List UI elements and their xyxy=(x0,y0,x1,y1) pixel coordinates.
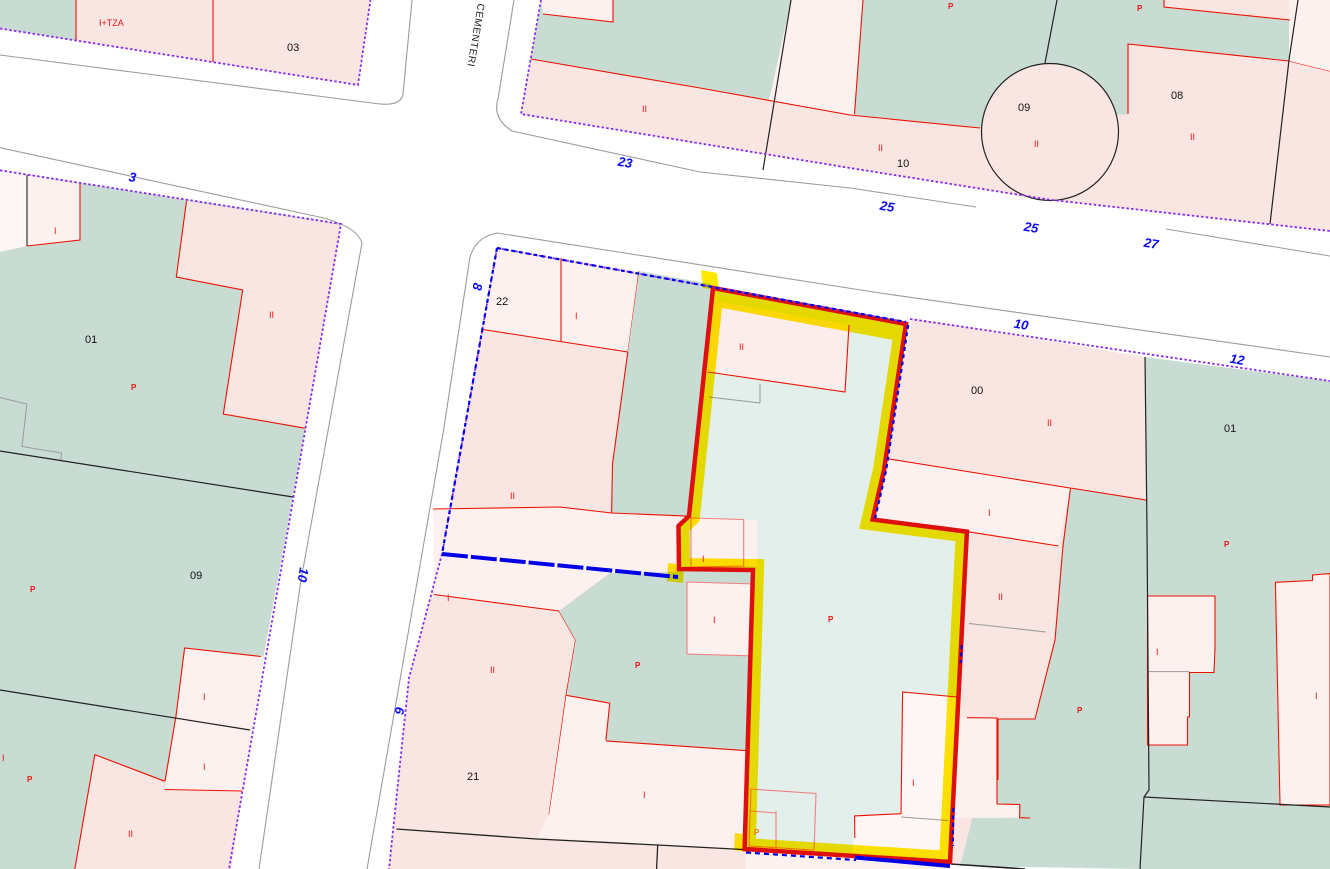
svg-text:I: I xyxy=(912,778,915,788)
svg-text:P: P xyxy=(948,2,954,11)
svg-text:P: P xyxy=(27,775,33,784)
svg-text:I: I xyxy=(203,692,206,702)
svg-text:P: P xyxy=(1224,540,1230,549)
svg-text:II: II xyxy=(739,342,744,352)
svg-text:I: I xyxy=(713,615,716,625)
svg-text:00: 00 xyxy=(971,385,983,397)
svg-text:I: I xyxy=(203,762,206,772)
svg-text:II: II xyxy=(1047,418,1052,428)
svg-text:II: II xyxy=(1034,139,1039,149)
svg-text:25: 25 xyxy=(1022,219,1040,236)
svg-text:01: 01 xyxy=(1224,423,1236,435)
svg-text:I: I xyxy=(575,311,578,321)
svg-text:I: I xyxy=(2,753,5,763)
svg-text:P: P xyxy=(30,585,36,594)
svg-text:I: I xyxy=(54,226,57,236)
svg-text:I: I xyxy=(447,593,450,603)
svg-text:10: 10 xyxy=(897,158,909,170)
svg-text:I: I xyxy=(1156,647,1159,657)
svg-text:P: P xyxy=(1077,706,1083,715)
svg-text:II: II xyxy=(1190,132,1195,142)
svg-text:09: 09 xyxy=(190,570,202,582)
svg-text:P: P xyxy=(828,615,834,624)
svg-text:II: II xyxy=(642,104,647,114)
svg-text:II: II xyxy=(878,143,883,153)
svg-text:P: P xyxy=(754,828,760,837)
svg-text:II: II xyxy=(998,592,1003,602)
svg-text:I: I xyxy=(702,554,705,564)
svg-text:P: P xyxy=(1137,4,1143,13)
svg-text:22: 22 xyxy=(496,296,508,308)
svg-text:I: I xyxy=(988,508,991,518)
svg-text:I: I xyxy=(1315,691,1318,701)
svg-text:09: 09 xyxy=(1018,102,1030,114)
svg-text:P: P xyxy=(131,383,137,392)
svg-text:P: P xyxy=(635,661,641,670)
svg-text:II: II xyxy=(269,310,274,320)
svg-text:I+TZA: I+TZA xyxy=(99,18,124,28)
svg-text:II: II xyxy=(490,665,495,675)
svg-text:27: 27 xyxy=(1142,235,1160,252)
svg-text:II: II xyxy=(510,491,515,501)
svg-text:21: 21 xyxy=(467,771,479,783)
svg-text:II: II xyxy=(128,829,133,839)
svg-text:25: 25 xyxy=(878,198,896,215)
svg-text:03: 03 xyxy=(287,42,299,54)
svg-text:08: 08 xyxy=(1171,90,1183,102)
svg-text:01: 01 xyxy=(85,334,97,346)
svg-text:I: I xyxy=(643,790,646,800)
svg-text:23: 23 xyxy=(616,154,634,171)
